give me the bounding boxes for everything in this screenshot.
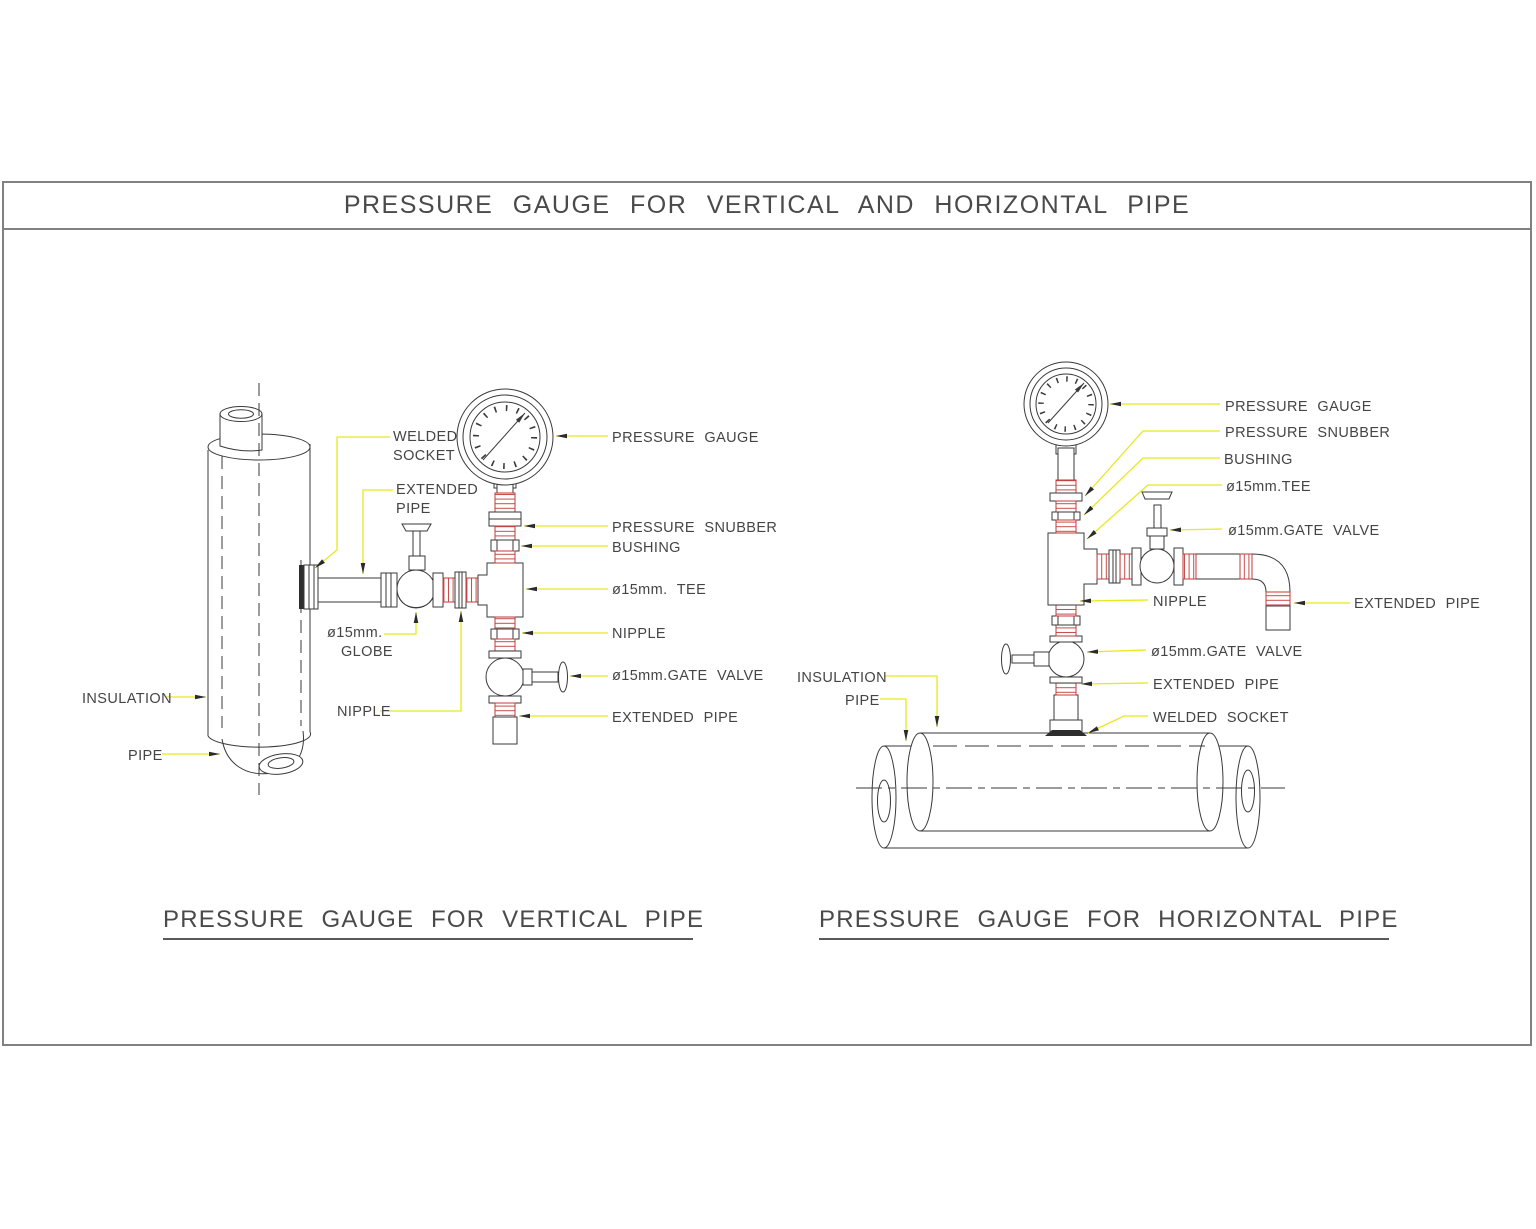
horizontal-insulated-pipe [856, 733, 1285, 848]
drawing-sheet: PRESSURE GAUGE FOR VERTICAL AND HORIZONT… [0, 0, 1536, 1229]
label-pressure-gauge-h: PRESSURE GAUGE [1225, 398, 1372, 417]
vertical-nipple-horizontal [443, 572, 478, 608]
label-globe-valve: ø15mm. GLOBE [327, 624, 393, 662]
horizontal-tee-fitting [1048, 533, 1097, 605]
label-tee-v: ø15mm. TEE [612, 581, 706, 600]
label-pipe-v: PIPE [128, 747, 163, 766]
diagram-canvas [0, 0, 1536, 1229]
horizontal-pressure-gauge [1024, 362, 1108, 446]
horizontal-gauge-stack [1050, 438, 1082, 533]
label-pipe-h: PIPE [845, 692, 880, 711]
label-extended-pipe-bottom-h: EXTENDED PIPE [1153, 676, 1279, 695]
label-welded-socket: WELDED SOCKET [393, 428, 457, 466]
label-pressure-snubber-v: PRESSURE SNUBBER [612, 519, 777, 538]
caption-horizontal-pipe: PRESSURE GAUGE FOR HORIZONTAL PIPE [819, 906, 1389, 940]
vertical-tee-fitting [478, 563, 523, 617]
label-nipple-right-v: NIPPLE [612, 625, 666, 644]
label-insulation-v: INSULATION [82, 690, 172, 709]
label-tee-h: ø15mm.TEE [1226, 478, 1311, 497]
label-extended-pipe-right-h: EXTENDED PIPE [1354, 595, 1480, 614]
label-welded-socket-h: WELDED SOCKET [1153, 709, 1289, 728]
label-bushing-v: BUSHING [612, 539, 681, 558]
vertical-insulated-pipe [208, 383, 311, 795]
vertical-pipe-diagram [162, 383, 608, 795]
label-pressure-snubber-h: PRESSURE SNUBBER [1225, 424, 1390, 443]
globe-valve [397, 524, 443, 608]
vertical-welded-socket [299, 565, 318, 609]
label-extended-pipe-bottom-v: EXTENDED PIPE [612, 709, 738, 728]
label-gate-valve-top-h: ø15mm.GATE VALVE [1228, 522, 1380, 541]
label-nipple-h: NIPPLE [1153, 593, 1207, 612]
label-extended-pipe-top: EXTENDED PIPE [396, 481, 478, 519]
label-nipple-left-v: NIPPLE [337, 703, 391, 722]
label-pressure-gauge-v: PRESSURE GAUGE [612, 429, 759, 448]
horizontal-lower-stack [1002, 605, 1085, 695]
vertical-pressure-gauge [457, 389, 553, 485]
label-insulation-h: INSULATION [797, 669, 887, 688]
label-gate-valve-v: ø15mm.GATE VALVE [612, 667, 764, 686]
vertical-extended-pipe [318, 573, 397, 607]
label-gate-valve-bottom-h: ø15mm.GATE VALVE [1151, 643, 1303, 662]
horizontal-welded-socket [1045, 695, 1087, 736]
caption-vertical-pipe: PRESSURE GAUGE FOR VERTICAL PIPE [163, 906, 693, 940]
vertical-lower-stack [486, 617, 568, 744]
label-bushing-h: BUSHING [1224, 451, 1293, 470]
